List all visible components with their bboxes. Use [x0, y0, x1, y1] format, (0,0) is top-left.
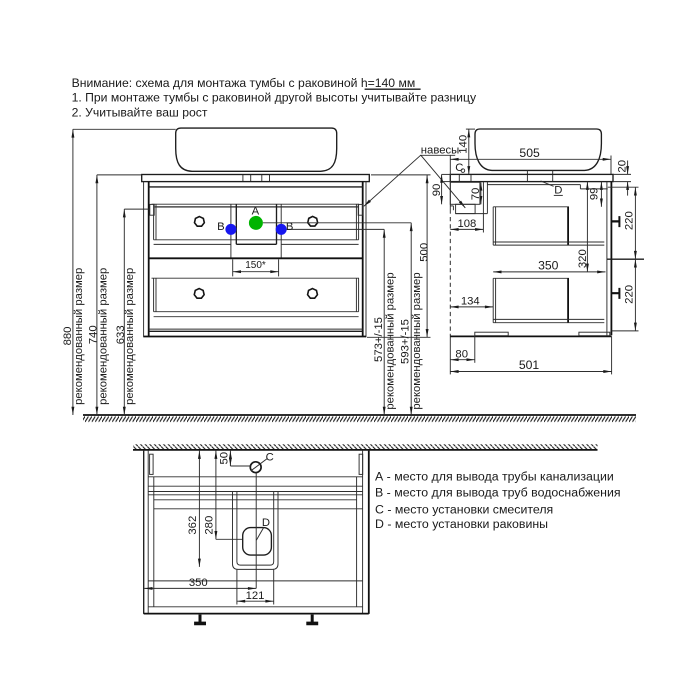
svg-text:20: 20: [616, 160, 628, 173]
svg-text:70: 70: [470, 188, 482, 201]
svg-text:D - место установки раковины: D - место установки раковины: [375, 517, 548, 531]
svg-text:99: 99: [588, 188, 600, 201]
svg-text:80: 80: [455, 348, 468, 360]
svg-text:А - место для вывода трубы кан: А - место для вывода трубы канализации: [375, 469, 614, 483]
svg-text:A: A: [252, 205, 260, 217]
svg-text:1. При монтаже тумбы с раковин: 1. При монтаже тумбы с раковиной другой …: [72, 91, 477, 105]
svg-text:рекомендованный размер: рекомендованный размер: [385, 272, 397, 409]
svg-text:90: 90: [431, 184, 443, 197]
svg-text:B: B: [286, 221, 294, 233]
svg-text:С - место установки смесителя: С - место установки смесителя: [375, 502, 553, 516]
svg-text:500: 500: [419, 243, 431, 262]
svg-text:134: 134: [461, 296, 480, 308]
svg-text:рекомендованный размер: рекомендованный размер: [124, 268, 136, 405]
svg-text:рекомендованный размер: рекомендованный размер: [411, 272, 423, 409]
svg-text:501: 501: [519, 358, 540, 372]
svg-text:рекомендованный размер: рекомендованный размер: [73, 268, 85, 405]
svg-text:D: D: [262, 517, 270, 529]
svg-text:220: 220: [624, 211, 636, 230]
svg-text:220: 220: [624, 285, 636, 304]
svg-text:C: C: [266, 451, 274, 463]
svg-text:320: 320: [577, 249, 589, 268]
svg-text:Внимание: схема для монтажа ту: Внимание: схема для монтажа тумбы с рако…: [72, 76, 416, 90]
svg-text:D: D: [554, 185, 562, 197]
svg-text:B: B: [217, 221, 225, 233]
svg-text:350: 350: [538, 259, 559, 273]
svg-text:рекомендованный размер: рекомендованный размер: [97, 268, 109, 405]
svg-text:навесы: навесы: [421, 145, 459, 157]
svg-text:505: 505: [519, 146, 540, 160]
svg-text:50: 50: [219, 452, 231, 465]
svg-text:150*: 150*: [245, 260, 266, 271]
svg-text:121: 121: [246, 590, 265, 602]
svg-text:В - место для вывода труб водо: В - место для вывода труб водоснабжения: [375, 486, 621, 500]
svg-text:2. Учитывайте ваш рост: 2. Учитывайте ваш рост: [72, 106, 208, 120]
svg-text:108: 108: [457, 218, 476, 230]
svg-text:350: 350: [189, 577, 208, 589]
svg-text:280: 280: [204, 516, 216, 535]
svg-text:362: 362: [187, 516, 199, 535]
svg-text:593+/-15: 593+/-15: [399, 319, 411, 364]
svg-text:573+/-15: 573+/-15: [373, 317, 385, 362]
